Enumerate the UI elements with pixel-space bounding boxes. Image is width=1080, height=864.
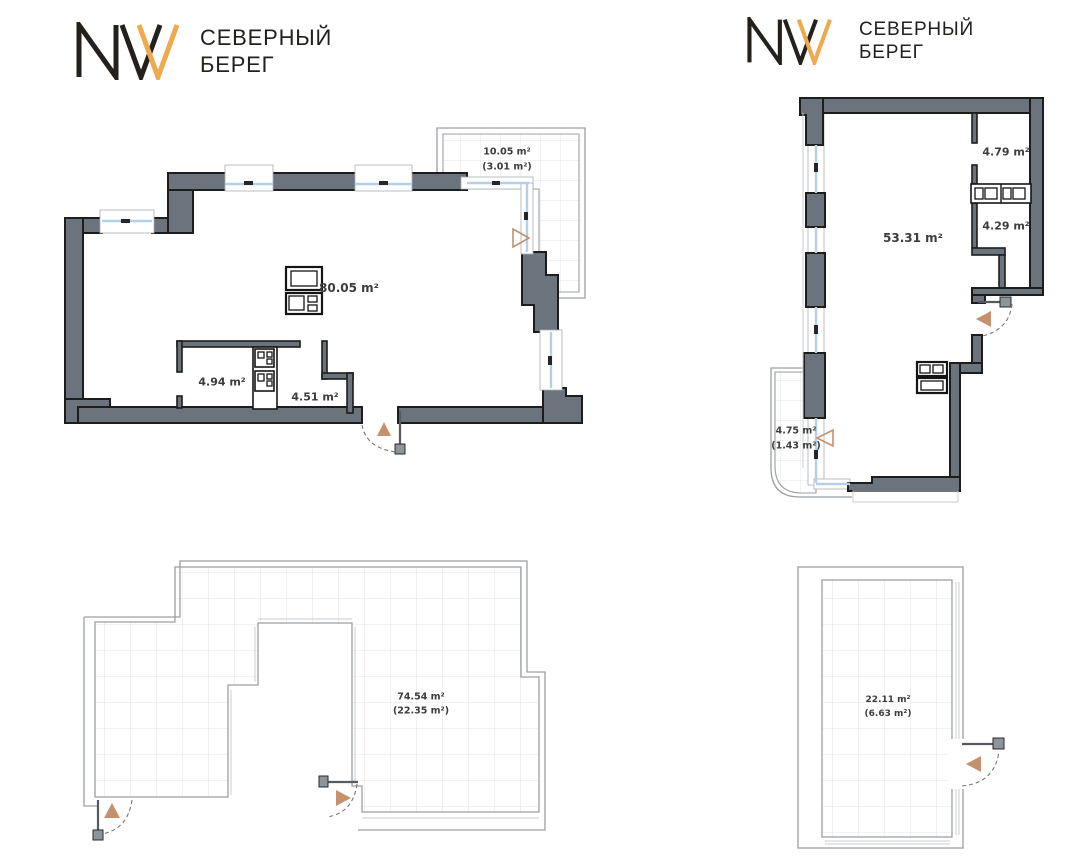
door-direction-triangle [976, 311, 991, 327]
label-balcony-area-a: 10.05 m² [483, 147, 530, 158]
label-room-bottom-area-b: 4.29 m² [982, 220, 1029, 233]
terrace-door-left [93, 800, 132, 840]
label-living-area-b: 53.31 m² [883, 231, 943, 245]
terrace-a-plan [84, 561, 545, 840]
balcony-tiles [443, 134, 579, 292]
label-bathroom-area-a: 4.94 m² [198, 376, 245, 389]
floorplan-sheet: СЕВЕРНЫЙ БЕРЕГ СЕВЕРНЫЙ БЕРЕГ [0, 0, 1080, 864]
door-direction-triangle [377, 422, 391, 436]
label-room-top-area-b: 4.79 m² [982, 146, 1029, 159]
appliance-row-icon [971, 184, 1031, 203]
label-terrace-b-area: 22.11 m² [866, 695, 911, 705]
door-direction-triangle [104, 803, 120, 818]
door-swing-arc [362, 425, 396, 452]
terrace-door [962, 738, 1004, 786]
stove-icon [917, 362, 947, 393]
label-terrace-b-area-reduced: (6.63 m²) [865, 709, 912, 719]
label-balcony-area-b-reduced: (1.43 m²) [771, 441, 821, 452]
label-living-area-a: 80.05 m² [319, 281, 379, 295]
door-hinge [993, 738, 1004, 749]
label-terrace-a-area: 74.54 m² [397, 692, 444, 703]
label-terrace-a-area-reduced: (22.35 m²) [393, 706, 449, 717]
terrace-door-middle [319, 776, 358, 817]
door-hinge [319, 776, 328, 787]
label-balcony-area-b: 4.75 m² [776, 426, 817, 437]
terrace-tiles [95, 567, 539, 812]
terrace-b-plan [798, 567, 1004, 848]
door-direction-triangle [966, 756, 981, 772]
threshold-ledge [853, 491, 958, 502]
plans-drawing [0, 0, 1080, 864]
entrance-door [976, 297, 1012, 336]
door-hinge [93, 830, 103, 840]
plumbing-shaft-icon [253, 347, 277, 409]
door-direction-triangle [336, 790, 351, 806]
door-opening [947, 739, 967, 789]
stove-icon [286, 267, 322, 314]
door-hinge [395, 444, 405, 454]
label-balcony-area-a-reduced: (3.01 m²) [482, 162, 532, 173]
door-hinge [1000, 297, 1011, 307]
label-hall-area-a: 4.51 m² [291, 391, 338, 404]
